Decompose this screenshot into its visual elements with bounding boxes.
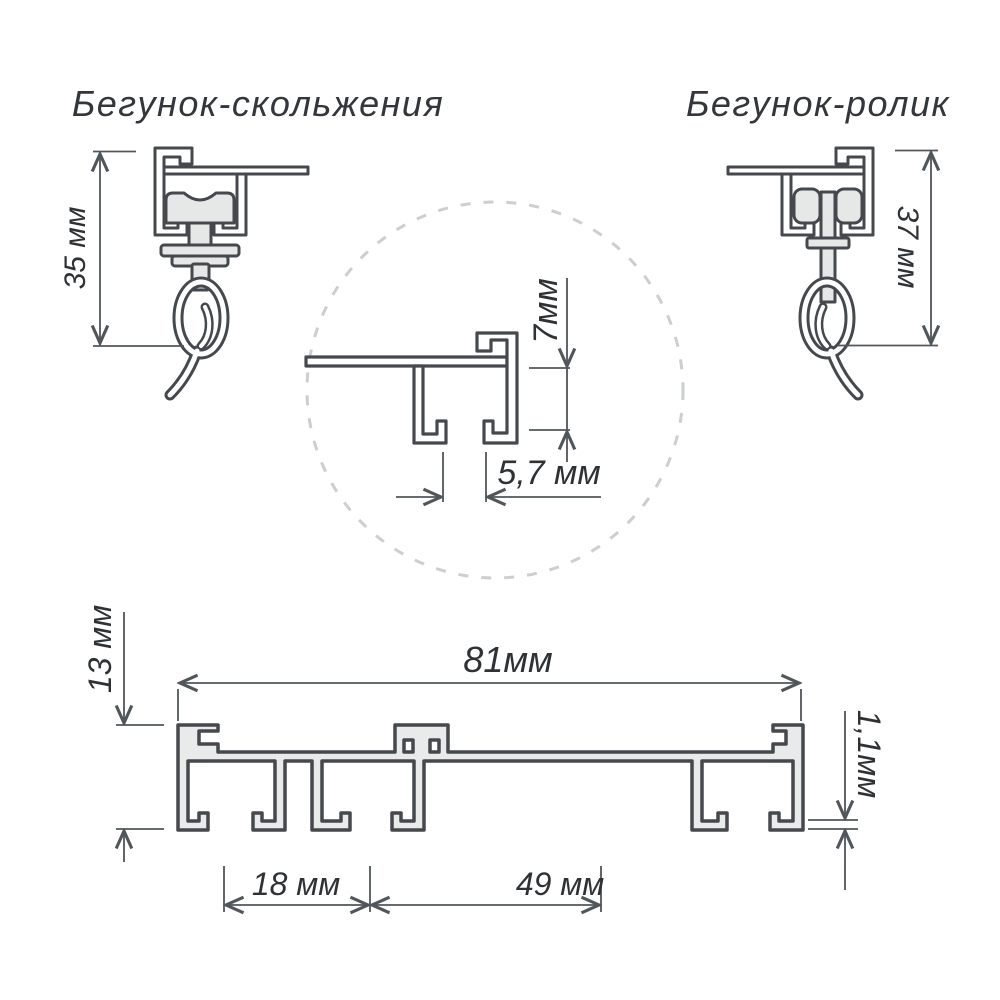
slider-runner-drawing: [155, 148, 308, 395]
roller-carrier-bar: [807, 238, 849, 248]
roller-wheel-left: [794, 189, 820, 223]
dimension-label-35mm: 35 мм: [61, 207, 91, 290]
profile-detail-drawing: [306, 333, 517, 443]
title-roller-runner: Бегунок-ролик: [686, 86, 950, 122]
dimension-label-18mm: 18 мм: [252, 868, 340, 900]
dimension-label-49mm: 49 мм: [516, 868, 604, 900]
dimension-label-13mm: 13 мм: [84, 605, 116, 693]
technical-drawing-page: Бегунок-скольжения Бегунок-ролик 35 мм 3…: [0, 0, 1000, 1000]
roller-rail-strip: [728, 167, 864, 174]
roller-wheel-right: [836, 189, 862, 223]
rail-profile-shape: [178, 725, 803, 830]
slider-glider-neck: [189, 223, 211, 247]
dimension-label-7mm: 7мм: [529, 278, 563, 344]
profile-height-dimension: [116, 612, 164, 862]
profile-width-dimension: [178, 683, 801, 721]
slider-glider-plate-top: [161, 245, 239, 256]
zoom-circle: [307, 202, 683, 578]
detail-hook-wall: [477, 333, 517, 443]
rail-profile-cross-section: [178, 725, 803, 830]
dimension-label-5-7mm: 5,7 мм: [497, 456, 600, 490]
drawing-canvas: [0, 0, 1000, 1000]
slider-hook: [170, 282, 224, 395]
dimension-label-81mm: 81мм: [463, 642, 552, 678]
detail-channel-wall: [414, 366, 446, 443]
detail-strip: [306, 357, 507, 366]
roller-runner-drawing: [728, 148, 873, 395]
dimension-label-37mm: 37 мм: [892, 206, 922, 289]
title-slider-runner: Бегунок-скольжения: [72, 86, 444, 122]
slider-glider-head: [166, 193, 234, 223]
dimension-label-1-1mm: 1,1мм: [853, 710, 885, 798]
